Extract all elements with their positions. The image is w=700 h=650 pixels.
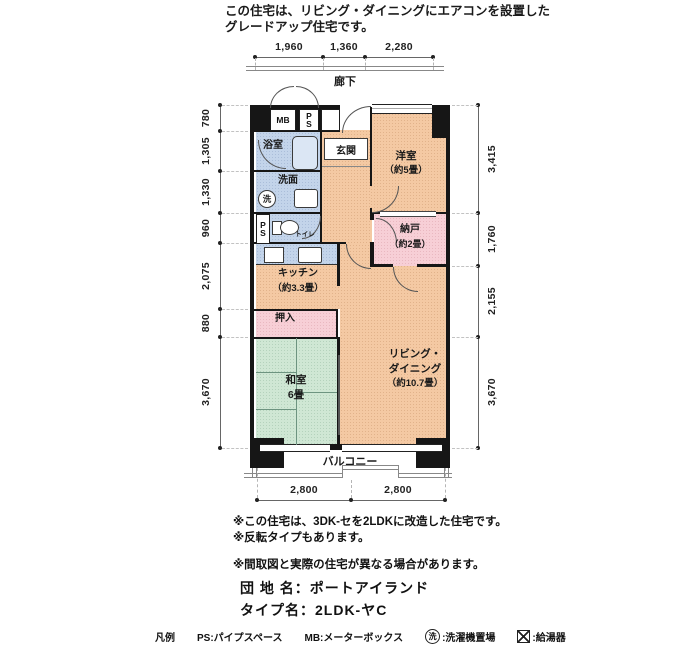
dim-tick — [452, 266, 478, 267]
entrance-box: 玄関 — [324, 138, 368, 160]
dim-dot — [349, 498, 353, 502]
window-japanese — [260, 444, 330, 452]
wash-circle-icon: 洗 — [425, 629, 440, 644]
closet-label: 押入 — [265, 313, 305, 326]
door-arc-mb — [270, 86, 294, 108]
dim-tick — [222, 243, 248, 244]
dim-left-2: 1,305 — [200, 129, 212, 173]
toilet-label: トイレ — [292, 231, 318, 239]
living-size: （約10.7畳） — [378, 378, 452, 390]
dim-tick — [222, 213, 248, 214]
washbasin — [294, 189, 318, 208]
legend-ps: PS:パイプスペース — [197, 629, 282, 644]
dim-bottom-1: 2,800 — [274, 484, 334, 496]
kitchen-size: （約3.3畳） — [263, 283, 333, 295]
header-line1: この住宅は、リビング・ダイニングにエアコンを設置した — [225, 3, 550, 19]
balcony-rail — [244, 477, 342, 478]
dim-right-3: 2,155 — [486, 279, 498, 323]
note-2: ※反転タイプもあります。 — [233, 529, 370, 545]
kitchen-name: キッチン — [268, 268, 328, 281]
corridor-line — [246, 70, 444, 71]
balcony-rail — [342, 469, 398, 470]
dim-tick — [452, 448, 478, 449]
note-3: ※間取図と実際の住宅が異なる場合があります。 — [233, 556, 485, 572]
dim-tick — [222, 337, 248, 338]
legend-mb: MB:メーターボックス — [304, 629, 403, 644]
top-dim-line — [255, 57, 433, 58]
bath-label: 浴室 — [254, 140, 292, 153]
legend-wash-label: :洗濯機置場 — [442, 629, 495, 644]
dim-tick — [257, 468, 258, 498]
wall-right — [446, 105, 450, 450]
dim-left-6: 880 — [200, 301, 212, 345]
living-line2: ダイニング — [380, 363, 450, 376]
dim-tick — [452, 105, 478, 106]
dim-tick — [222, 309, 248, 310]
window-western — [372, 104, 432, 114]
dim-tick — [222, 105, 248, 106]
window-living — [342, 444, 442, 452]
dim-tick — [452, 337, 478, 338]
bathtub — [292, 136, 318, 170]
western-size: （約5畳） — [376, 165, 436, 177]
balcony-rail — [342, 465, 398, 466]
mb-label: MB — [276, 115, 289, 125]
dim-left-5: 2,075 — [200, 254, 212, 298]
left-dim-line — [220, 105, 221, 448]
note-1: ※この住宅は、3DK-セを2LDKに改造した住宅です。 — [233, 513, 507, 529]
legend-wash: 洗 :洗濯機置場 — [425, 629, 495, 644]
balcony-rail — [244, 473, 342, 474]
dim-tick — [222, 171, 248, 172]
storage-size: （約2畳） — [380, 239, 440, 250]
balcony-side — [252, 468, 253, 477]
wall-segment — [336, 309, 338, 337]
balcony-rail — [398, 477, 452, 478]
wall-segment — [370, 264, 393, 267]
door-arc-ps — [296, 86, 319, 108]
corridor-line — [246, 66, 444, 67]
legend: 凡例 PS:パイプスペース MB:メーターボックス 洗 :洗濯機置場 :給湯器 — [155, 629, 566, 644]
western-name: 洋室 — [386, 150, 426, 163]
corridor-label: 廊下 — [320, 76, 370, 90]
balcony-label: バルコニー — [310, 456, 390, 470]
wall-segment — [254, 309, 338, 311]
dim-right-4: 3,670 — [486, 370, 498, 414]
door-arc-entrance — [342, 106, 371, 133]
water-heater-icon — [517, 630, 530, 643]
header-line2: グレードアップ住宅です。 — [225, 19, 550, 35]
stove — [264, 247, 284, 263]
sliding-door-japanese — [338, 355, 340, 435]
dim-top-1: 1,960 — [264, 41, 314, 53]
dim-tick — [351, 480, 352, 498]
wall-segment — [417, 264, 446, 267]
balcony-side — [448, 468, 449, 477]
dim-tick — [445, 468, 446, 498]
building-name: 団 地 名：ポートアイランド — [240, 578, 429, 598]
living-dining-room — [340, 244, 446, 446]
storage-name: 納戸 — [390, 224, 430, 237]
dim-top-2: 1,360 — [319, 41, 369, 53]
dim-tick — [222, 448, 248, 449]
pillar-bottom-left — [250, 438, 284, 468]
legend-title: 凡例 — [155, 629, 175, 644]
dim-tick — [433, 58, 434, 70]
washing-machine-symbol: 洗 — [258, 190, 276, 208]
dim-right-1: 3,415 — [486, 137, 498, 181]
wall-segment — [320, 132, 322, 244]
header-note: この住宅は、リビング・ダイニングにエアコンを設置した グレードアップ住宅です。 — [225, 3, 550, 35]
dim-tick — [452, 213, 478, 214]
wall-segment — [337, 244, 340, 286]
dim-top-3: 2,280 — [374, 41, 424, 53]
dim-tick — [222, 131, 248, 132]
kitchen-sink — [298, 247, 322, 263]
pipe-space-mid: PS — [256, 214, 270, 244]
dim-dot — [255, 498, 259, 502]
dim-left-4: 960 — [200, 206, 212, 250]
utility-box — [321, 109, 340, 131]
pillar-bottom-right — [416, 438, 450, 468]
tatami-line — [256, 372, 296, 373]
dim-tick — [255, 58, 256, 70]
washroom-label: 洗面 — [268, 175, 308, 188]
dim-tick — [323, 58, 324, 70]
meter-box: MB — [270, 109, 296, 131]
floorplan-page: この住宅は、リビング・ダイニングにエアコンを設置した グレードアップ住宅です。 … — [0, 0, 700, 650]
wash-symbol-label: 洗 — [263, 193, 272, 205]
entrance-label: 玄関 — [336, 142, 356, 157]
balcony-rail — [398, 465, 399, 478]
dim-bottom-2: 2,800 — [368, 484, 428, 496]
ps-label: PS — [304, 112, 314, 129]
wall-segment — [254, 170, 320, 172]
wall-left — [250, 105, 254, 450]
window-storage — [380, 211, 436, 217]
dim-left-7: 3,670 — [200, 370, 212, 414]
japanese-name: 和室 — [276, 374, 316, 387]
window-line — [372, 108, 432, 109]
legend-heater-label: :給湯器 — [532, 629, 565, 644]
right-dim-line — [478, 105, 479, 448]
ps-label: PS — [258, 221, 268, 238]
building-type: タイプ名：2LDK-ヤC — [240, 600, 387, 620]
dim-dot — [443, 498, 447, 502]
entrance-step-line — [322, 166, 370, 167]
pipe-space-top: PS — [299, 109, 319, 131]
dim-tick — [365, 58, 366, 70]
japanese-size: 6畳 — [276, 389, 316, 402]
wall-segment — [370, 212, 374, 220]
tatami-line — [256, 409, 296, 410]
dim-right-2: 1,760 — [486, 217, 498, 261]
living-line1: リビング・ — [380, 348, 450, 361]
legend-heater: :給湯器 — [517, 629, 565, 644]
balcony-rail — [342, 465, 343, 478]
